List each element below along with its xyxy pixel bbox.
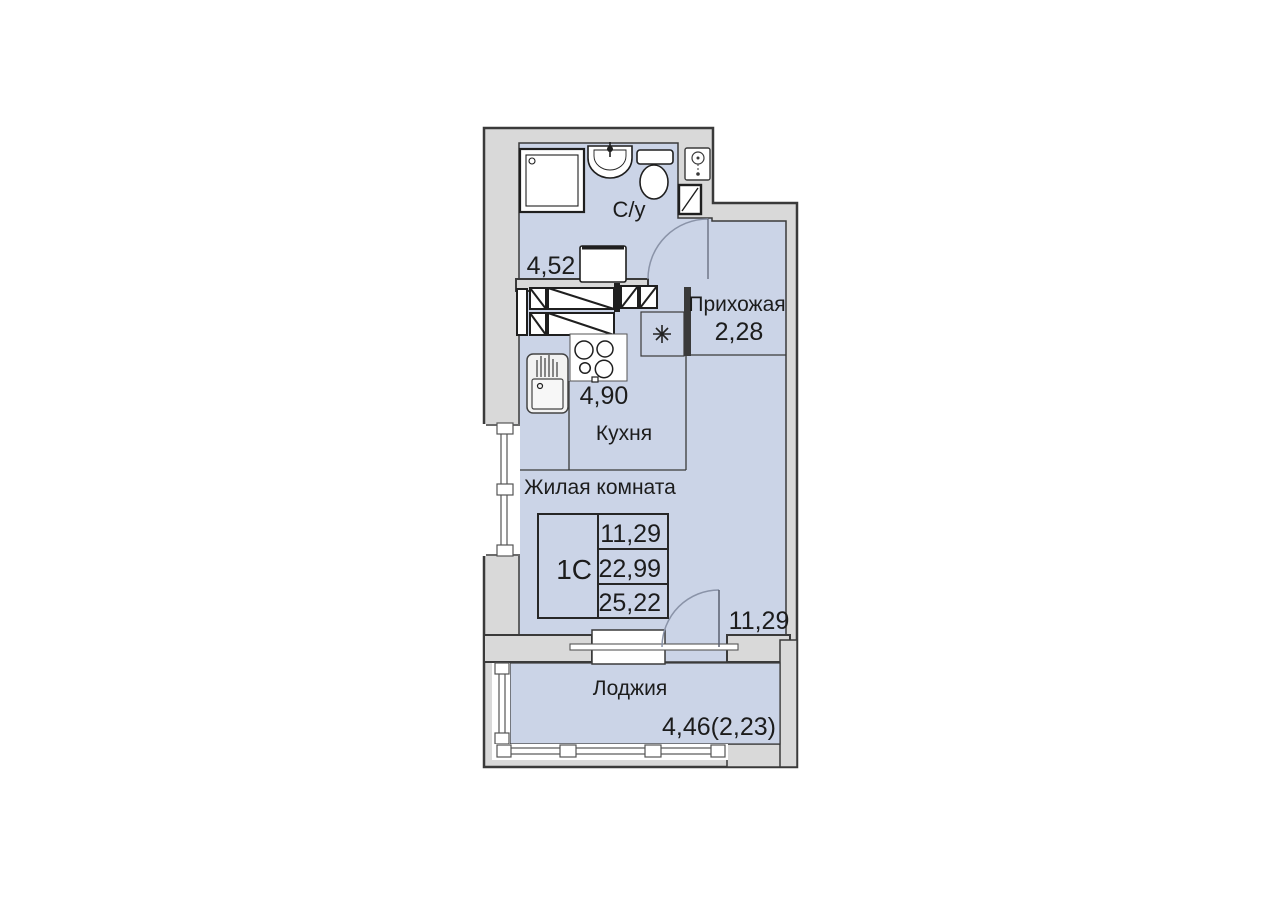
- living-room-label: Жилая комната: [524, 476, 676, 499]
- floor-plan-drawing: 1С 11,29 22,99 25,22 С/у 4,52 Прихожая 2…: [0, 0, 1280, 904]
- washing-machine-icon: [580, 246, 626, 282]
- hallway-label: Прихожая: [688, 293, 785, 316]
- washbasin-icon: [588, 142, 632, 178]
- kitchen-area: 4,90: [580, 382, 629, 410]
- loggia-area: 4,46(2,23): [662, 713, 776, 741]
- living-room-window: [482, 423, 520, 556]
- floor-plan-canvas: 1С 11,29 22,99 25,22 С/у 4,52 Прихожая 2…: [0, 0, 1280, 904]
- stamp-area-without-loggia: 22,99: [598, 555, 661, 583]
- bathroom-area: 4,52: [527, 252, 576, 280]
- loggia-glazing-bottom: [492, 744, 728, 760]
- kitchen-label: Кухня: [596, 422, 652, 445]
- living-room-area: 11,29: [729, 607, 790, 635]
- hallway-area: 2,28: [715, 318, 764, 346]
- unit-type-label: 1С: [556, 554, 592, 585]
- utility-meter-icon: [685, 148, 710, 180]
- stamp-living-area: 11,29: [600, 520, 661, 548]
- vent-shaft-icon: [679, 185, 701, 214]
- shower-cabin-icon: [520, 149, 584, 212]
- bathroom-label: С/у: [613, 197, 646, 222]
- loggia-label: Лоджия: [593, 677, 667, 700]
- stamp-total-area: 25,22: [598, 589, 661, 617]
- kitchen-sink-icon: [527, 354, 568, 413]
- stove-icon: [570, 334, 627, 382]
